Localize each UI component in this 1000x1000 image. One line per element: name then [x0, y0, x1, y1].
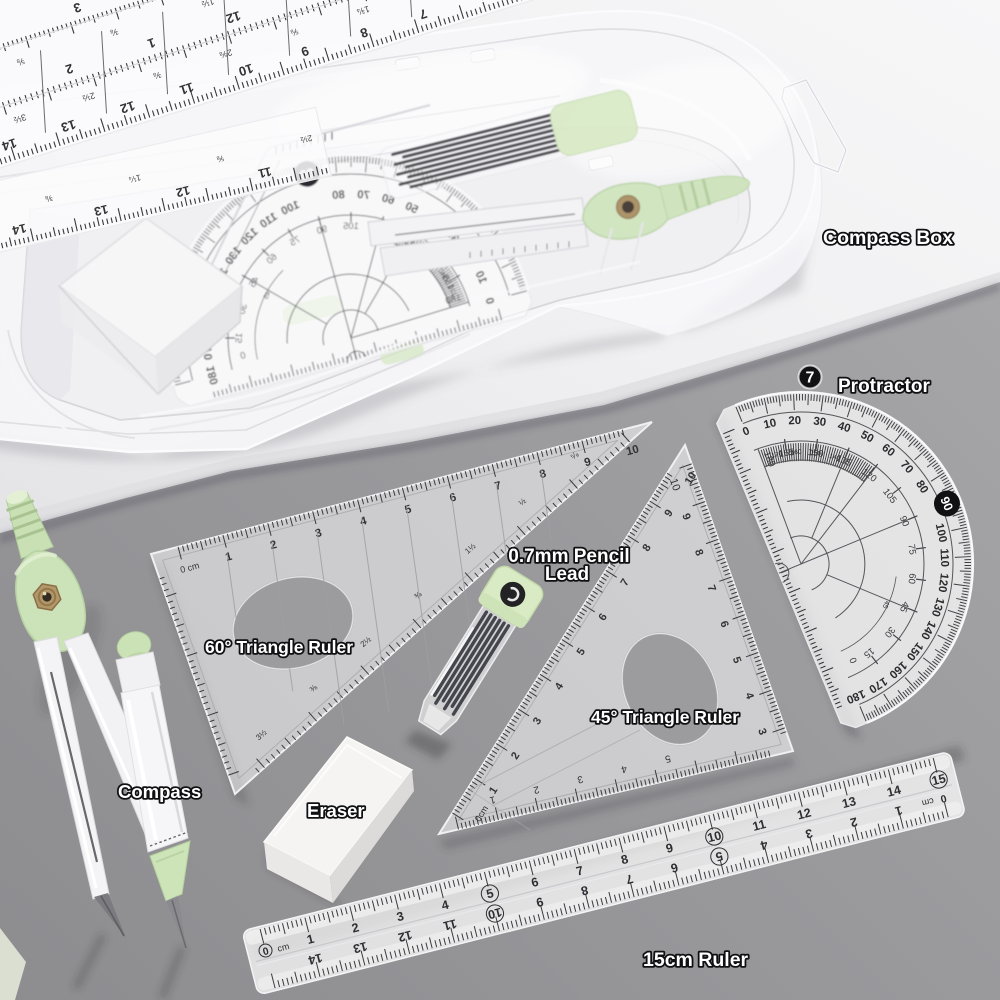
svg-text:45° Triangle Ruler: 45° Triangle Ruler: [591, 707, 739, 727]
svg-text:7: 7: [806, 370, 815, 387]
svg-text:60: 60: [905, 573, 917, 585]
svg-text:70: 70: [357, 189, 371, 202]
svg-text:75: 75: [905, 543, 917, 555]
svg-text:20: 20: [788, 415, 801, 428]
svg-text:Eraser: Eraser: [307, 800, 365, 821]
svg-text:60° Triangle Ruler: 60° Triangle Ruler: [205, 637, 353, 657]
svg-text:105: 105: [343, 221, 359, 232]
svg-text:160: 160: [791, 449, 803, 456]
svg-text:120: 120: [936, 572, 950, 593]
svg-text:30: 30: [813, 415, 827, 429]
svg-text:Lead: Lead: [545, 564, 589, 585]
svg-text:15: 15: [234, 333, 245, 344]
svg-text:15cm Ruler: 15cm Ruler: [643, 949, 749, 971]
svg-text:Protractor: Protractor: [838, 376, 930, 397]
svg-text:Compass: Compass: [118, 781, 201, 802]
svg-text:80: 80: [332, 189, 346, 202]
svg-text:110: 110: [938, 548, 951, 567]
svg-text:Compass Box: Compass Box: [823, 227, 953, 249]
svg-text:150: 150: [810, 449, 822, 457]
